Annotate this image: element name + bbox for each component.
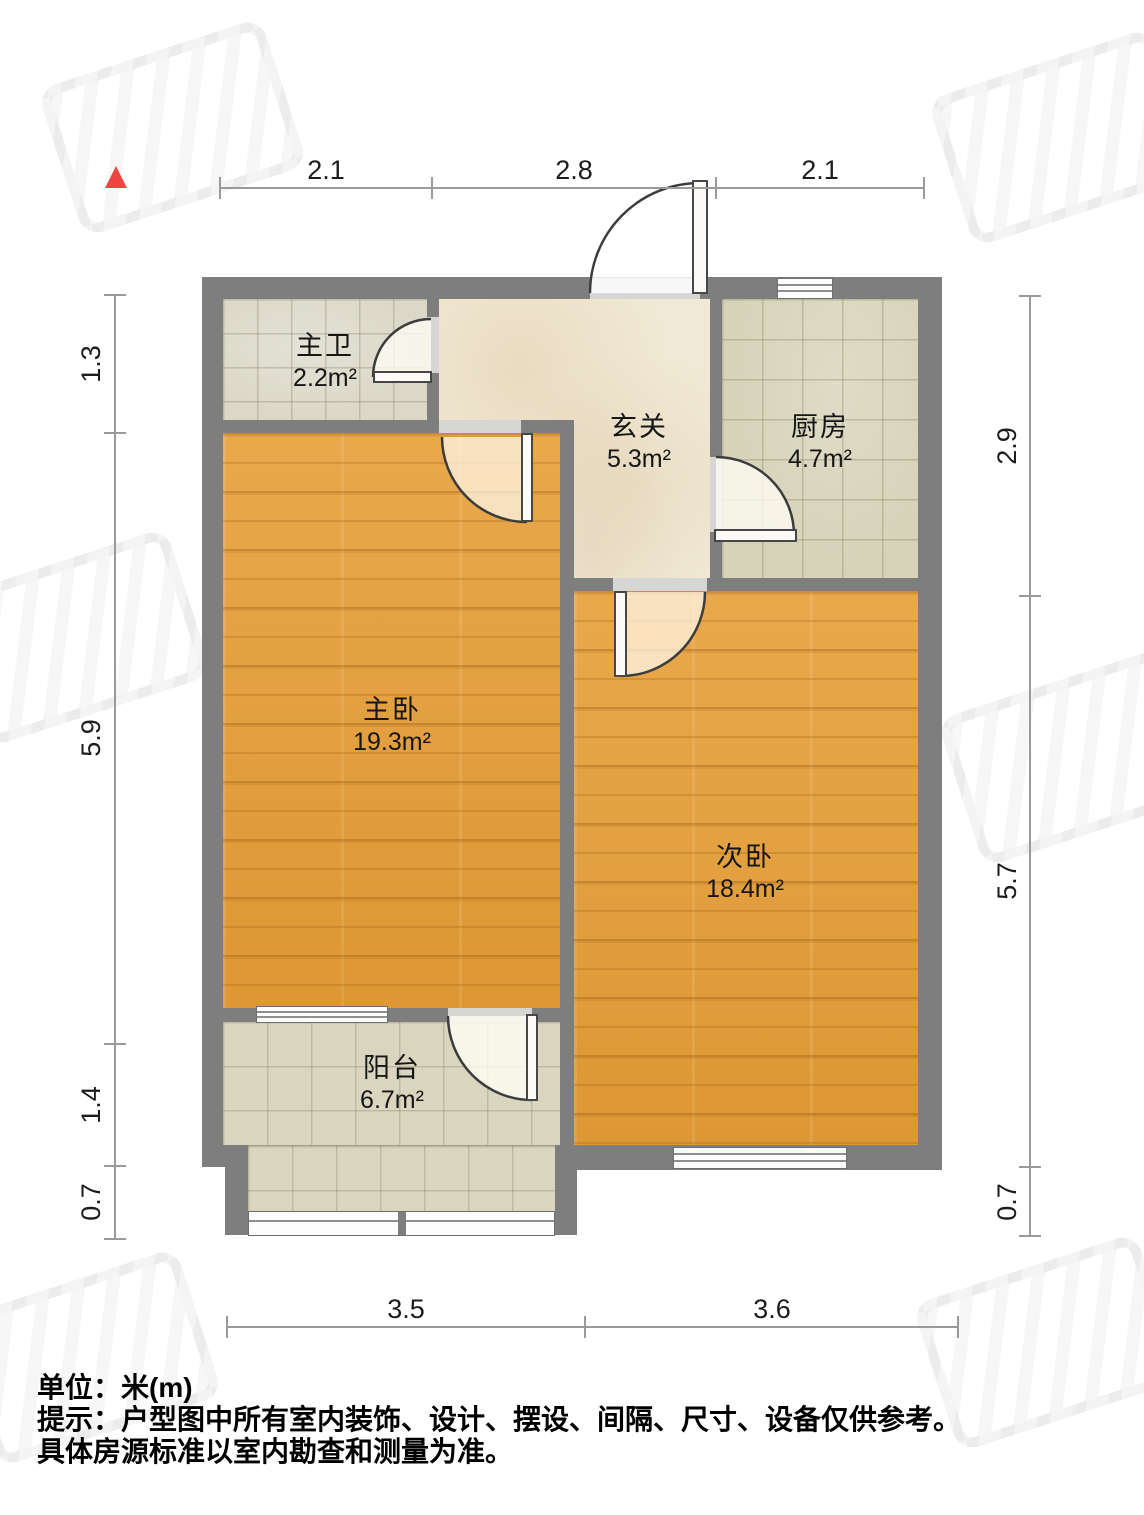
- wall-bathroom-right-upper: [427, 299, 439, 317]
- room-label-bathroom: 主卫 2.2m²: [240, 330, 410, 394]
- opening-second-door: [613, 578, 707, 591]
- room-label-hall: 玄关 5.3m²: [554, 411, 724, 475]
- kitchen-window: [777, 278, 833, 299]
- room-label-balcony: 阳台 6.7m²: [307, 1052, 477, 1116]
- footer-notes: 单位：米(m) 提示：户型图中所有室内装饰、设计、摆设、间隔、尺寸、设备仅供参考…: [37, 1372, 961, 1468]
- dim-tick: [104, 294, 126, 296]
- balcony-name: 阳台: [307, 1052, 477, 1085]
- dim-top-0: 2.1: [276, 155, 376, 185]
- wall-balcony-right: [555, 1145, 577, 1235]
- tip-line-2: 具体房源标准以室内勘查和测量为准。: [37, 1436, 961, 1468]
- watermark: [0, 527, 213, 747]
- dim-right-line: [1029, 296, 1031, 1237]
- dim-bottom-0: 3.5: [356, 1294, 456, 1324]
- balcony-area: 6.7m²: [307, 1085, 477, 1116]
- dim-tick: [104, 1165, 126, 1167]
- dim-top-line: [220, 187, 925, 189]
- watermark: [937, 647, 1144, 867]
- dim-left-1: 5.9: [76, 688, 106, 788]
- master-door-leaf: [521, 433, 533, 522]
- dim-top-2: 2.1: [770, 155, 870, 185]
- dim-tick: [1019, 595, 1041, 597]
- dim-tick: [219, 177, 221, 199]
- bathroom-area: 2.2m²: [240, 363, 410, 394]
- kitchen-door-leaf: [714, 529, 797, 542]
- second-area: 18.4m²: [660, 874, 830, 905]
- second-bedroom-window: [673, 1147, 847, 1169]
- hall-name: 玄关: [554, 411, 724, 444]
- second-door-leaf: [614, 591, 627, 677]
- dim-tick: [104, 1238, 126, 1240]
- kitchen-name: 厨房: [735, 411, 905, 444]
- dim-tick: [431, 177, 433, 199]
- wall-spine-vertical: [560, 433, 574, 1145]
- dim-left-3: 0.7: [76, 1152, 106, 1252]
- opening-bathroom-door: [427, 317, 439, 373]
- kitchen-area: 4.7m²: [735, 444, 905, 475]
- watermark: [927, 27, 1144, 247]
- balcony-window: [248, 1211, 555, 1236]
- dim-right-2: 0.7: [992, 1152, 1022, 1252]
- dim-tick: [1019, 1166, 1041, 1168]
- north-arrow-icon: [105, 166, 127, 188]
- balcony-window-mullion: [398, 1212, 406, 1235]
- dim-right-1: 5.7: [992, 831, 1022, 931]
- tip-line-1: 提示：户型图中所有室内装饰、设计、摆设、间隔、尺寸、设备仅供参考。: [37, 1404, 961, 1436]
- opening-master-door: [439, 420, 521, 433]
- dim-tick: [923, 177, 925, 199]
- dim-bottom-1: 3.6: [722, 1294, 822, 1324]
- dim-tick: [1019, 1235, 1041, 1237]
- entrance-door-leaf: [692, 180, 708, 294]
- wall-balcony-left: [225, 1145, 248, 1235]
- opening-balcony-door: [448, 1008, 532, 1022]
- wall-master-top: [223, 420, 574, 433]
- floor-balcony-lower: [248, 1145, 555, 1213]
- dim-tick: [104, 1043, 126, 1045]
- dim-left-0: 1.3: [76, 314, 106, 414]
- unit-note: 单位：米(m): [37, 1372, 961, 1404]
- dim-left-2: 1.4: [76, 1055, 106, 1155]
- wall-right: [918, 299, 942, 1170]
- dim-tick: [226, 1316, 228, 1338]
- bathroom-name: 主卫: [240, 330, 410, 363]
- room-label-master: 主卧 19.3m²: [307, 694, 477, 758]
- master-name: 主卧: [307, 694, 477, 727]
- balcony-door-leaf: [526, 1014, 538, 1101]
- dim-bottom-line: [227, 1326, 959, 1328]
- second-name: 次卧: [660, 841, 830, 874]
- dim-tick: [104, 432, 126, 434]
- room-label-second: 次卧 18.4m²: [660, 841, 830, 905]
- watermark: [37, 17, 308, 237]
- dim-tick: [1019, 295, 1041, 297]
- dim-left-line: [114, 295, 116, 1240]
- opening-entrance: [590, 278, 700, 299]
- dim-right-0: 2.9: [992, 396, 1022, 496]
- hall-area: 5.3m²: [554, 444, 724, 475]
- wall-left: [202, 299, 223, 1167]
- dim-top-1: 2.8: [524, 155, 624, 185]
- master-area: 19.3m²: [307, 727, 477, 758]
- floor-plan-canvas: 主卫 2.2m² 玄关 5.3m² 厨房 4.7m² 主卧 19.3m² 次卧 …: [0, 0, 1144, 1515]
- master-balcony-window: [256, 1006, 388, 1023]
- dim-tick: [584, 1316, 586, 1338]
- dim-tick: [957, 1316, 959, 1338]
- dim-tick: [715, 177, 717, 199]
- room-label-kitchen: 厨房 4.7m²: [735, 411, 905, 475]
